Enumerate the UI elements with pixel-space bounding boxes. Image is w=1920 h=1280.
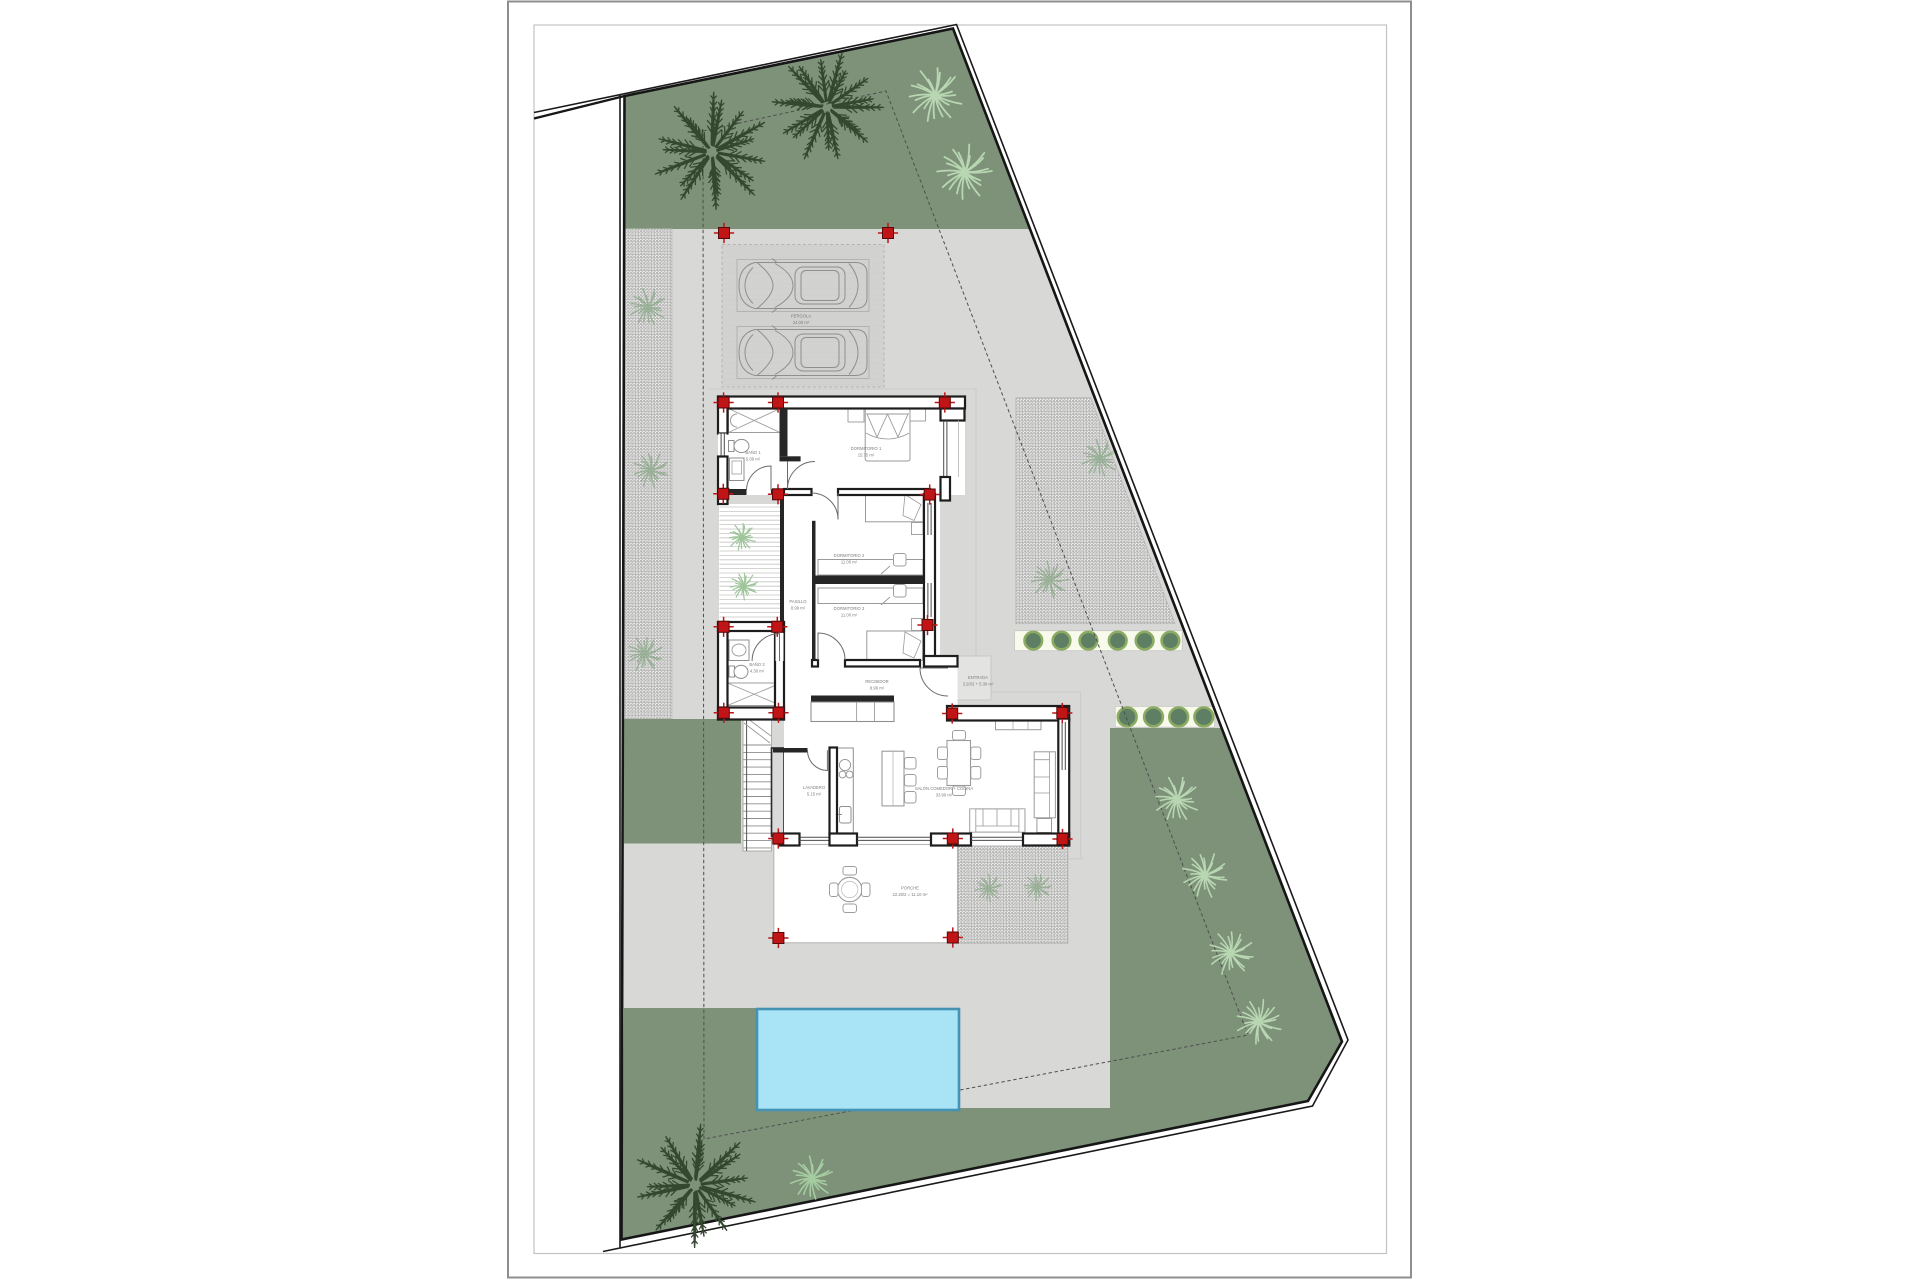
svg-text:24.00 m²: 24.00 m² (793, 320, 810, 325)
svg-text:RECIBIDOR: RECIBIDOR (865, 679, 888, 684)
svg-text:PASILLO: PASILLO (789, 599, 807, 604)
svg-text:11.00 m²: 11.00 m² (841, 560, 858, 565)
svg-text:33.90 m²: 33.90 m² (936, 793, 953, 798)
svg-text:PERGOLA: PERGOLA (791, 314, 811, 319)
svg-text:BAÑO 1: BAÑO 1 (745, 450, 761, 455)
svg-text:5.89 m²: 5.89 m² (746, 457, 761, 462)
svg-text:8.96 m²: 8.96 m² (870, 686, 885, 691)
svg-text:11.00 m²: 11.00 m² (841, 613, 858, 618)
svg-text:BAÑO 2: BAÑO 2 (749, 662, 765, 667)
svg-text:8.99 m²: 8.99 m² (791, 606, 806, 611)
svg-text:22.20/2 = 11.10 m²: 22.20/2 = 11.10 m² (893, 892, 929, 897)
svg-text:3.20/2 + 5.30 m²: 3.20/2 + 5.30 m² (963, 682, 994, 687)
svg-text:LAVADERO: LAVADERO (803, 785, 826, 790)
svg-text:SALÓN COMEDOR + COCINA: SALÓN COMEDOR + COCINA (915, 786, 973, 791)
svg-text:DORMITORIO 3: DORMITORIO 3 (834, 606, 865, 611)
svg-text:5.15 m²: 5.15 m² (807, 792, 822, 797)
svg-text:15.75 m²: 15.75 m² (858, 453, 875, 458)
svg-text:DORMITORIO 1: DORMITORIO 1 (851, 446, 882, 451)
svg-text:PORCHE: PORCHE (901, 886, 919, 891)
svg-text:ENTRADA: ENTRADA (968, 675, 988, 680)
svg-text:4.30 m²: 4.30 m² (750, 669, 765, 674)
svg-text:DORMITORIO 2: DORMITORIO 2 (834, 553, 865, 558)
